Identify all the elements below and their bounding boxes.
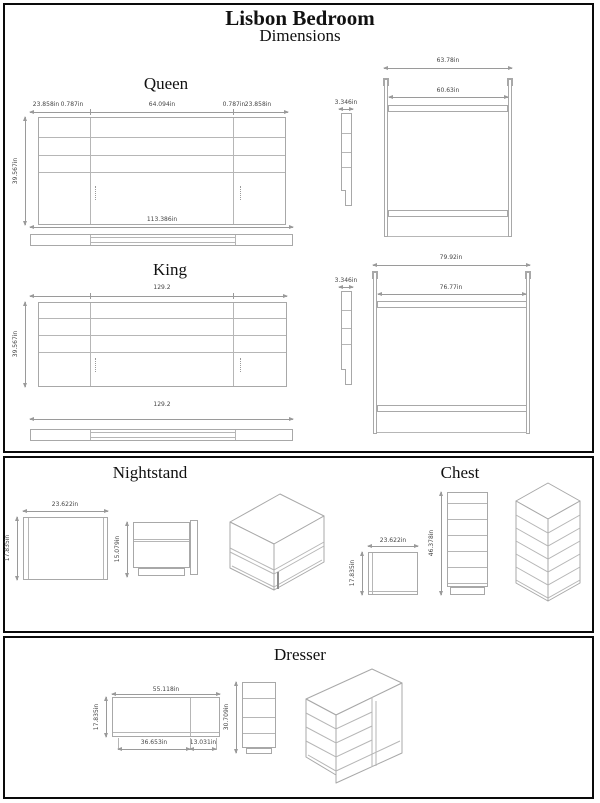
chest-top-view: [368, 552, 418, 595]
queen-dim-right-reveal: 0.787in: [223, 102, 246, 108]
dresser-front-view: [112, 697, 220, 737]
nightstand-isometric-view: [220, 486, 332, 596]
nightstand-side-height-label: 15.079in: [115, 536, 121, 562]
king-frame-outer-dimension-line: [373, 265, 530, 266]
nightstand-side-base: [138, 568, 185, 576]
king-headboard-front-view: [38, 302, 287, 387]
nightstand-side-back-panel: [190, 520, 198, 575]
queen-top-dimension-line: [30, 112, 288, 113]
nightstand-side-view: [133, 522, 190, 568]
dresser-side-height-dimension-line: [236, 682, 237, 753]
queen-frame-inner-width-label: 60.63in: [437, 88, 460, 94]
chest-top-depth-dimension-line: [362, 552, 363, 595]
chest-top-depth-label: 17.835in: [350, 560, 356, 586]
queen-side-thickness-label: 3.346in: [335, 100, 358, 106]
king-rail-dimension-line: [30, 419, 293, 420]
king-rail-view: [30, 429, 293, 441]
king-height-label: 39.567in: [13, 331, 19, 357]
dresser-bottom-right-label: 13.031in: [190, 740, 216, 746]
queen-frame-right-rail: [508, 79, 512, 237]
chest-height-dimension-line: [441, 492, 442, 595]
king-side-thickness-label: 3.346in: [335, 278, 358, 284]
king-height-dimension-line: [25, 302, 26, 387]
dresser-bottom-left-dimension-line: [118, 749, 190, 750]
king-frame-inner-width-label: 76.77in: [440, 285, 463, 291]
king-side-dimension-line: [339, 287, 353, 288]
queen-dim-left-reveal: 0.787in: [61, 102, 84, 108]
king-frame-outer-width-label: 79.92in: [440, 255, 463, 261]
queen-frame-top-crossbar: [388, 105, 508, 112]
queen-title: Queen: [96, 74, 236, 94]
dimensions-sheet: Lisbon Bedroom Dimensions Queen 23.858in…: [0, 0, 600, 803]
nightstand-side-height-dimension-line: [127, 522, 128, 577]
chest-top-width-dimension-line: [368, 546, 418, 547]
queen-dim-center: 64.094in: [149, 102, 175, 108]
page-subtitle: Dimensions: [0, 26, 600, 46]
queen-headboard-front-view: [38, 117, 286, 225]
chest-height-label: 46.378in: [429, 530, 435, 556]
nightstand-width-label: 23.622in: [52, 502, 78, 508]
dresser-width-dimension-line: [112, 694, 220, 695]
dresser-isometric-view: [298, 663, 410, 785]
dresser-bottom-right-dimension-line: [190, 749, 216, 750]
queen-rail-view: [30, 234, 293, 246]
dresser-height-label: 17.835in: [94, 704, 100, 730]
queen-rail-dimension-line: [30, 227, 293, 228]
king-title: King: [100, 260, 240, 280]
queen-dim-left-panel: 23.858in: [33, 102, 59, 108]
king-frame-top-crossbar: [377, 301, 527, 308]
nightstand-height-dimension-line: [17, 517, 18, 580]
king-top-dimension-line: [30, 296, 287, 297]
queen-frame-inner-dimension-line: [389, 97, 508, 98]
queen-dim-right-panel: 23.858in: [245, 102, 271, 108]
chest-title: Chest: [400, 463, 520, 483]
queen-rail-width-label: 113.386in: [147, 217, 177, 223]
dresser-side-height-label: 30.709in: [224, 704, 230, 730]
chest-isometric-view: [508, 477, 588, 607]
nightstand-title: Nightstand: [70, 463, 230, 483]
queen-height-dimension-line: [25, 117, 26, 225]
king-frame-bottom-crossbar: [377, 405, 527, 412]
queen-height-label: 39.567in: [13, 158, 19, 184]
chest-top-width-label: 23.622in: [380, 538, 406, 544]
dresser-side-view: [242, 682, 276, 748]
dresser-width-label: 55.118in: [153, 687, 179, 693]
queen-frame-outer-width-label: 63.78in: [437, 58, 460, 64]
queen-side-dimension-line: [339, 109, 353, 110]
chest-front-base: [450, 587, 485, 595]
dresser-side-base: [246, 748, 272, 754]
dresser-bottom-left-label: 36.653in: [141, 740, 167, 746]
chest-front-view: [447, 492, 488, 587]
dresser-height-dimension-line: [106, 697, 107, 737]
queen-frame-outer-dimension-line: [384, 68, 512, 69]
king-width-label: 129.2: [153, 285, 170, 291]
nightstand-width-dimension-line: [23, 511, 108, 512]
nightstand-front-view: [23, 517, 108, 580]
queen-frame-bottom-crossbar: [388, 210, 508, 217]
king-frame-inner-dimension-line: [378, 294, 526, 295]
nightstand-height-label: 17.835in: [5, 535, 11, 561]
dresser-title: Dresser: [230, 645, 370, 665]
king-rail-width-label: 129.2: [153, 402, 170, 408]
